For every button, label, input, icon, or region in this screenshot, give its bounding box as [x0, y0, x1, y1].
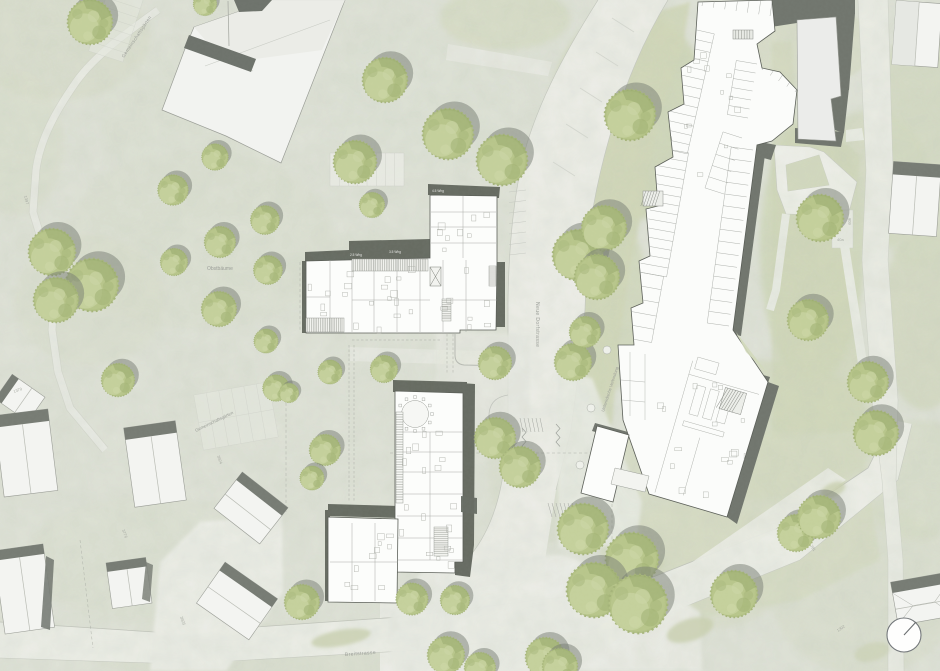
svg-text:Neue Dorfstrasse: Neue Dorfstrasse [534, 302, 540, 347]
svg-text:909: 909 [847, 218, 852, 226]
svg-text:40a: 40a [837, 237, 844, 242]
svg-text:Obstbäume: Obstbäume [207, 266, 233, 272]
